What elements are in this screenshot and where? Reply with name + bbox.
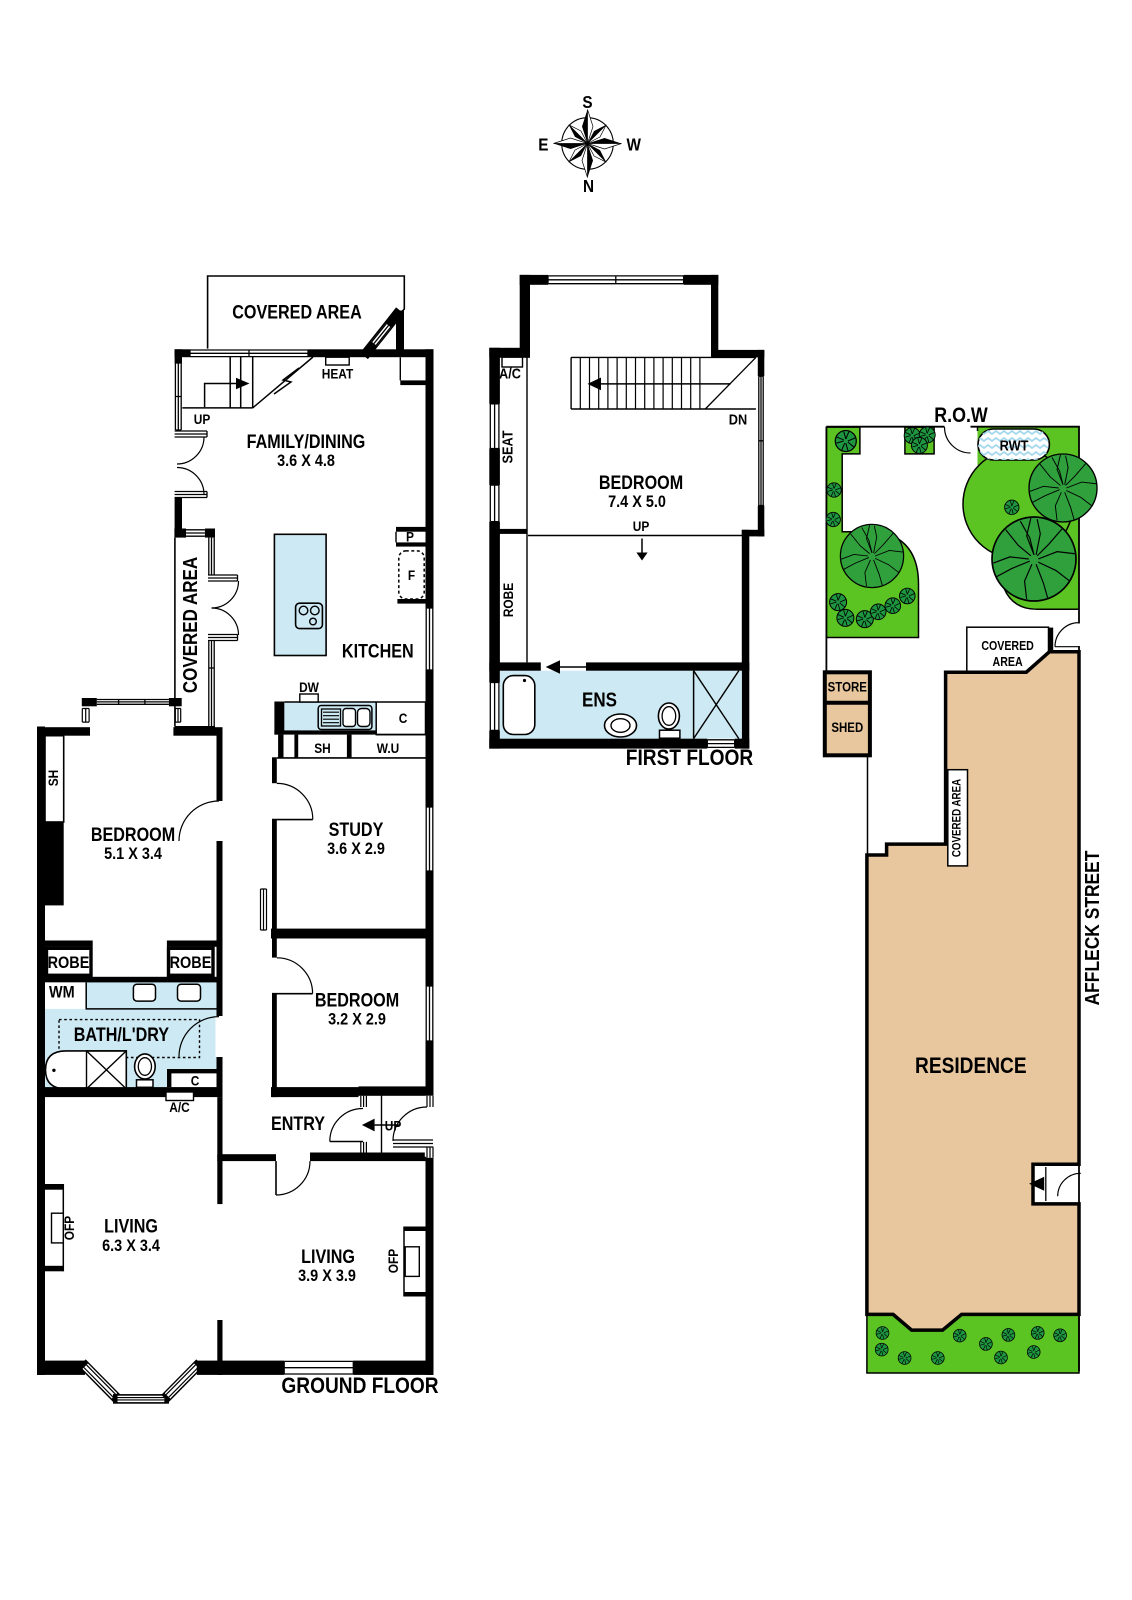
svg-text:6.3 X 3.4: 6.3 X 3.4 — [102, 1237, 160, 1255]
svg-text:COVERED AREA: COVERED AREA — [951, 779, 964, 858]
svg-text:A/C: A/C — [169, 1099, 190, 1115]
svg-text:ENTRY: ENTRY — [271, 1113, 325, 1135]
svg-text:ROBE: ROBE — [170, 954, 212, 972]
svg-text:BEDROOM: BEDROOM — [91, 824, 175, 846]
svg-text:A/C: A/C — [499, 364, 521, 381]
svg-text:DW: DW — [299, 679, 319, 695]
svg-text:KITCHEN: KITCHEN — [342, 640, 414, 662]
svg-text:W: W — [627, 134, 642, 154]
svg-text:RESIDENCE: RESIDENCE — [915, 1054, 1027, 1079]
svg-text:COVERED AREA: COVERED AREA — [232, 301, 362, 323]
svg-text:W.U: W.U — [377, 740, 399, 756]
svg-text:WM: WM — [49, 983, 75, 1001]
svg-text:HEAT: HEAT — [322, 366, 354, 382]
svg-text:3.6 X 4.8: 3.6 X 4.8 — [277, 452, 335, 470]
svg-text:OFP: OFP — [385, 1248, 401, 1273]
svg-text:F: F — [408, 567, 415, 583]
svg-text:DN: DN — [729, 410, 747, 427]
svg-text:C: C — [399, 710, 408, 726]
svg-text:FIRST FLOOR: FIRST FLOOR — [626, 746, 753, 771]
svg-text:UP: UP — [194, 411, 211, 427]
svg-text:COVERED: COVERED — [981, 639, 1034, 653]
svg-text:3.2 X 2.9: 3.2 X 2.9 — [328, 1010, 386, 1028]
svg-text:AREA: AREA — [993, 655, 1024, 669]
svg-text:S: S — [582, 92, 592, 112]
svg-text:FAMILY/DINING: FAMILY/DINING — [247, 431, 366, 453]
svg-text:ROBE: ROBE — [500, 583, 516, 618]
svg-text:C: C — [191, 1073, 200, 1089]
svg-text:OFP: OFP — [61, 1215, 77, 1240]
svg-text:COVERED AREA: COVERED AREA — [179, 557, 202, 693]
svg-text:LIVING: LIVING — [104, 1215, 158, 1237]
svg-text:3.9 X 3.9: 3.9 X 3.9 — [298, 1267, 356, 1285]
svg-text:BEDROOM: BEDROOM — [599, 472, 683, 494]
svg-text:STORE: STORE — [828, 680, 867, 695]
svg-text:BATH/L'DRY: BATH/L'DRY — [74, 1024, 170, 1046]
svg-text:SH: SH — [45, 770, 61, 787]
svg-text:STUDY: STUDY — [329, 819, 384, 841]
svg-text:UP: UP — [385, 1118, 402, 1134]
svg-text:R.O.W: R.O.W — [934, 404, 988, 428]
svg-text:7.4 X 5.0: 7.4 X 5.0 — [608, 493, 666, 511]
svg-text:LIVING: LIVING — [301, 1246, 355, 1268]
svg-text:AFFLECK STREET: AFFLECK STREET — [1082, 850, 1105, 1005]
svg-text:RWT: RWT — [1000, 436, 1029, 453]
svg-text:GROUND FLOOR: GROUND FLOOR — [281, 1374, 438, 1399]
svg-text:SEAT: SEAT — [498, 430, 515, 463]
svg-text:ROBE: ROBE — [48, 954, 90, 972]
svg-text:3.6 X 2.9: 3.6 X 2.9 — [327, 840, 385, 858]
svg-text:E: E — [538, 134, 548, 154]
svg-text:UP: UP — [633, 518, 650, 534]
svg-text:ENS: ENS — [582, 688, 617, 711]
svg-text:5.1 X 3.4: 5.1 X 3.4 — [104, 845, 162, 863]
svg-text:P: P — [406, 529, 414, 545]
svg-text:SH: SH — [314, 740, 331, 756]
svg-text:N: N — [583, 176, 594, 196]
svg-text:SHED: SHED — [831, 720, 863, 735]
svg-text:BEDROOM: BEDROOM — [315, 989, 399, 1011]
